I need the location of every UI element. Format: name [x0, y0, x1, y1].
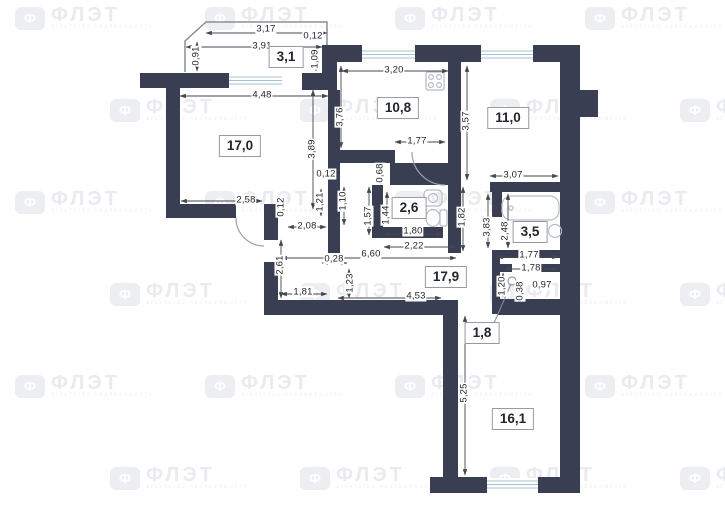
dimension-label: 1,21 — [315, 191, 326, 212]
dimension-label: 3,20 — [383, 65, 404, 76]
dimension-label: 1,57 — [363, 205, 374, 226]
room-bedroom-1-area-label: 11,0 — [487, 107, 529, 129]
dimension-label: 0,91 — [191, 45, 202, 66]
room-balcony-area-label: 3,1 — [269, 46, 304, 68]
dimension-label: 1,23 — [345, 272, 356, 293]
dimension-label: 2,61 — [275, 254, 286, 275]
dimension-label: 1,77 — [518, 250, 539, 261]
dimension-label: 0,12 — [315, 169, 336, 180]
room-storage-area-label: 1,8 — [465, 322, 500, 344]
dimension-label: 3,89 — [307, 138, 318, 159]
room-wc-area-label: 2,6 — [392, 197, 427, 219]
dimension-label: 3,07 — [502, 170, 523, 181]
dimension-label: 1,20 — [497, 275, 508, 296]
room-bedroom-2-area-label: 16,1 — [492, 408, 534, 430]
dimension-label: 1,09 — [310, 48, 321, 69]
dimension-label: 2,48 — [500, 220, 511, 241]
dimension-label: 1,81 — [292, 287, 313, 298]
dimension-label: 0,68 — [375, 162, 386, 183]
dimension-label: 2,22 — [403, 241, 424, 252]
dimension-label: 3,76 — [335, 106, 346, 127]
dimension-label: 4,48 — [251, 90, 272, 101]
dimension-label: 3,57 — [461, 110, 472, 131]
dimension-label: 2,58 — [235, 195, 256, 206]
dimension-label: 6,60 — [360, 249, 381, 260]
dimension-label: 0,38 — [515, 280, 526, 301]
room-living-area-label: 17,0 — [219, 135, 261, 157]
dimension-label: 3,17 — [255, 24, 276, 35]
room-hallway-area-label: 17,9 — [425, 266, 467, 288]
dimension-label: 1,77 — [406, 136, 427, 147]
dimension-label: 5,25 — [459, 382, 470, 403]
dimension-label: 1,10 — [338, 190, 349, 211]
labels-layer: 3,170,123,910,911,094,483,203,763,573,07… — [0, 0, 725, 513]
floor-plan: ФФЛЭТагентство недвижимостиФФЛЭТагентств… — [0, 0, 725, 513]
dimension-label: 0,12 — [302, 31, 323, 42]
dimension-label: 0,97 — [531, 280, 552, 291]
dimension-label: 1,78 — [520, 263, 541, 274]
dimension-label: 1,44 — [381, 204, 392, 225]
dimension-label: 2,08 — [296, 221, 317, 232]
room-bathroom-area-label: 3,5 — [513, 221, 548, 243]
room-kitchen-area-label: 10,8 — [377, 97, 419, 119]
dimension-label: 1,80 — [402, 226, 423, 237]
dimension-label: 4,53 — [405, 291, 426, 302]
dimension-label: 0,12 — [276, 196, 287, 217]
dimension-label: 1,82 — [457, 206, 468, 227]
dimension-label: 0,28 — [323, 254, 344, 265]
dimension-label: 3,83 — [482, 216, 493, 237]
